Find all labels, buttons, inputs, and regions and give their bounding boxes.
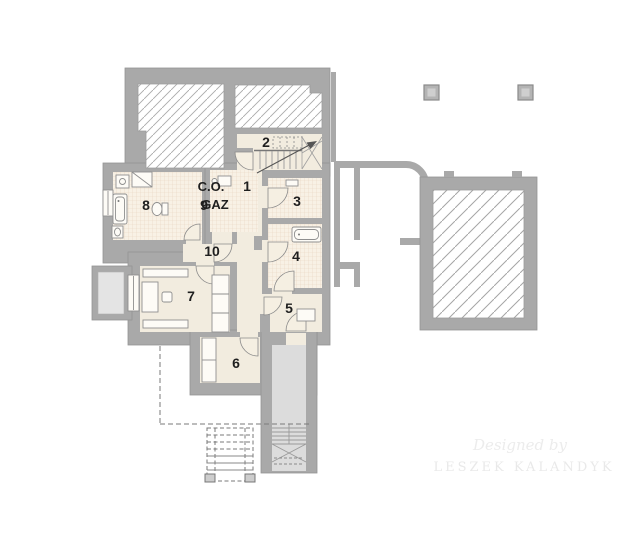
boiler-label-line2: GAZ xyxy=(201,197,229,212)
room-5-label: 5 xyxy=(285,300,293,316)
garden-structure-tab-2 xyxy=(512,171,522,177)
opening-room4 xyxy=(262,240,268,262)
opening-room7 xyxy=(196,262,214,266)
toilet-fixture xyxy=(152,203,162,216)
radiator-room3 xyxy=(286,180,298,186)
retaining-wall-bottom xyxy=(334,262,360,269)
wall-stub-corridor xyxy=(254,236,263,250)
boiler-label-line1: C.O. xyxy=(198,179,225,194)
garden-structure-hatch xyxy=(433,190,524,318)
stairwell-floor xyxy=(272,345,306,471)
room-7-label: 7 xyxy=(187,288,195,304)
wardrobe-room7 xyxy=(212,275,229,332)
retaining-wall-leg-1 xyxy=(334,269,340,287)
light-well-pit xyxy=(98,272,124,314)
shelf-room7-bottom xyxy=(143,320,188,328)
retaining-wall-a xyxy=(334,162,340,266)
chair-room7 xyxy=(162,292,172,302)
room-3-label: 3 xyxy=(293,193,301,209)
stair-foot-right xyxy=(245,474,255,482)
unexcavated-area-2 xyxy=(235,85,322,128)
retaining-wall-stub xyxy=(400,238,420,245)
room-10-label: 10 xyxy=(204,243,220,259)
room-6-label: 6 xyxy=(232,355,240,371)
room-2-label: 2 xyxy=(262,134,270,150)
unexcavated-area-1 xyxy=(138,84,224,168)
retaining-wall-top xyxy=(334,161,406,168)
retaining-wall-leg-2 xyxy=(354,269,360,287)
opening-room3 xyxy=(262,186,268,208)
room-8-label: 8 xyxy=(142,197,150,213)
floor-plan-svg: 1 2 3 4 5 6 7 8 9 10 C.O. GAZ Designed b… xyxy=(0,0,638,556)
watermark-author: LESZEK KALANDYK xyxy=(433,460,614,475)
washer-fixture xyxy=(116,175,129,188)
stair-foot-left xyxy=(205,474,215,482)
retaining-wall-north xyxy=(331,72,336,162)
floor-plan-canvas: 1 2 3 4 5 6 7 8 9 10 C.O. GAZ Designed b… xyxy=(0,0,638,556)
shelf-room7-top xyxy=(143,269,188,277)
retaining-wall-b xyxy=(354,162,360,240)
room-1-label: 1 xyxy=(243,178,251,194)
opening-room6 xyxy=(240,332,258,337)
cabinet-room5 xyxy=(297,309,315,321)
room-4-label: 4 xyxy=(292,248,300,264)
wall-stub-room5 xyxy=(260,314,270,332)
watermark-credit: Designed by xyxy=(472,436,568,454)
opening-room5-stairwell xyxy=(286,333,306,345)
opening-room8 xyxy=(186,240,202,244)
garden-structure-tab-1 xyxy=(444,171,454,177)
desk-room7 xyxy=(142,282,158,312)
